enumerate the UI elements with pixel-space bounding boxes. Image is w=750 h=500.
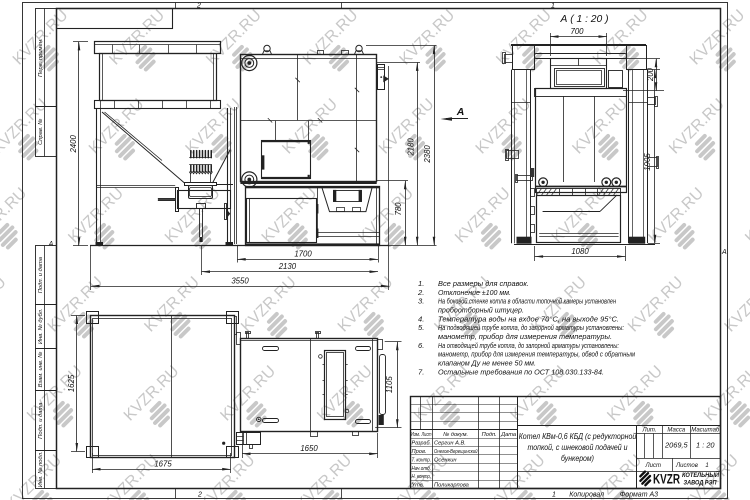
svg-text:2180: 2180 — [406, 138, 415, 157]
svg-text:Дата: Дата — [500, 432, 516, 438]
svg-text:Разраб.: Разраб. — [412, 441, 432, 447]
svg-text:1650: 1650 — [300, 444, 318, 453]
svg-text:5.: 5. — [418, 323, 424, 332]
svg-text:Лист: Лист — [421, 432, 432, 438]
svg-text:бункером): бункером) — [561, 454, 594, 463]
svg-text:2380: 2380 — [423, 145, 432, 164]
svg-text:7.: 7. — [418, 367, 424, 376]
svg-text:На отводящей трубе котла, до з: На отводящей трубе котла, до запорной ар… — [438, 341, 619, 350]
svg-text:Перв. примен.: Перв. примен. — [38, 38, 44, 77]
svg-text:2069,5: 2069,5 — [664, 441, 688, 450]
svg-text:Онегов-Верещинский: Онегов-Верещинский — [434, 448, 478, 455]
svg-text:Т. контр.: Т. контр. — [412, 457, 432, 463]
svg-text:Пров.: Пров. — [412, 449, 427, 455]
svg-text:1625: 1625 — [67, 374, 76, 392]
svg-text:3.: 3. — [418, 297, 424, 306]
svg-text:2: 2 — [197, 491, 202, 498]
svg-text:манометр, прибор для измерения: манометр, прибор для измерения температу… — [438, 350, 636, 359]
svg-text:А: А — [456, 106, 465, 118]
svg-text:Масса: Масса — [667, 427, 685, 433]
svg-text:На подводящей трубе котла, до: На подводящей трубе котла, до запорной а… — [438, 323, 624, 332]
svg-text:1.: 1. — [418, 279, 424, 288]
svg-text:пробоотборный штуцер.: пробоотборный штуцер. — [438, 305, 524, 314]
svg-text:1: 1 — [705, 463, 708, 469]
svg-text:Инв. № подл.: Инв. № подл. — [38, 451, 44, 487]
svg-text:780: 780 — [394, 202, 403, 216]
svg-text:Поликарпова: Поликарпова — [434, 483, 469, 489]
svg-text:А ( 1 : 20 ): А ( 1 : 20 ) — [560, 14, 609, 25]
svg-text:Утв.: Утв. — [411, 483, 425, 489]
svg-text:Н. контр.: Н. контр. — [412, 474, 432, 480]
svg-text:Изм.: Изм. — [411, 432, 421, 438]
svg-text:2.: 2. — [417, 288, 424, 297]
svg-text:700: 700 — [570, 27, 584, 36]
svg-text:2400: 2400 — [69, 135, 78, 154]
svg-text:Лит.: Лит. — [641, 427, 656, 433]
svg-text:1 : 20: 1 : 20 — [696, 441, 715, 450]
svg-text:Сергин А.В.: Сергин А.В. — [434, 441, 466, 447]
svg-text:1700: 1700 — [294, 250, 312, 259]
svg-text:4.: 4. — [418, 314, 424, 323]
svg-text:КОТЕЛЬНЫЙ: КОТЕЛЬНЫЙ — [682, 470, 719, 479]
svg-text:№ докум.: № докум. — [443, 432, 468, 438]
svg-text:Листов: Листов — [675, 463, 698, 469]
svg-text:Формат А3: Формат А3 — [620, 491, 658, 498]
svg-text:Остальные требования по ОСТ 10: Остальные требования по ОСТ 108.030.133-… — [438, 367, 604, 376]
svg-text:Лист: Лист — [645, 463, 661, 469]
svg-text:3550: 3550 — [231, 276, 249, 285]
svg-text:KVZR: KVZR — [653, 472, 680, 487]
svg-text:1080: 1080 — [571, 247, 589, 256]
svg-text:Все размеры для справок.: Все размеры для справок. — [438, 279, 529, 288]
svg-text:А: А — [721, 249, 727, 256]
svg-text:Копировал: Копировал — [569, 491, 604, 498]
svg-text:Отклонение ±100 мм.: Отклонение ±100 мм. — [438, 288, 511, 297]
svg-text:Инв. № дубл.: Инв. № дубл. — [38, 308, 44, 344]
svg-text:клапаном Ду не менее 50 мм.: клапаном Ду не менее 50 мм. — [438, 359, 536, 368]
svg-text:Подп.: Подп. — [482, 432, 497, 438]
svg-text:1675: 1675 — [154, 460, 172, 469]
svg-text:1105: 1105 — [385, 376, 394, 393]
svg-text:2: 2 — [196, 3, 201, 10]
svg-text:6.: 6. — [418, 341, 424, 350]
svg-text:Нач.отд.: Нач.отд. — [412, 466, 432, 472]
svg-text:А: А — [48, 241, 54, 248]
svg-text:ЗАВОД РЭП: ЗАВОД РЭП — [684, 480, 717, 487]
svg-text:Температура воды на вхдое 70°С: Температура воды на вхдое 70°С, на выход… — [438, 314, 619, 323]
svg-text:манометр, прибор для измерения: манометр, прибор для измерения температу… — [438, 332, 612, 341]
svg-text:Масштаб: Масштаб — [691, 427, 720, 433]
svg-text:Подп. и дата: Подп. и дата — [38, 256, 44, 293]
svg-text:1: 1 — [551, 3, 555, 10]
svg-text:Осенкин: Осенкин — [434, 457, 457, 463]
svg-text:1: 1 — [552, 491, 556, 498]
svg-text:Подп. и дата: Подп. и дата — [38, 402, 44, 439]
svg-text:2130: 2130 — [278, 262, 297, 271]
svg-text:Взам. инв. №: Взам. инв. № — [38, 352, 44, 388]
svg-text:Справ. №: Справ. № — [38, 119, 44, 145]
svg-text:1905: 1905 — [643, 153, 652, 171]
svg-text:топкой, с шнековой подачей и: топкой, с шнековой подачей и — [528, 443, 628, 452]
svg-text:Котел КВм-0,6 КБД (с редукторн: Котел КВм-0,6 КБД (с редукторной — [519, 432, 637, 441]
svg-text:На боковой стенке котла в обла: На боковой стенке котла в области топочн… — [438, 297, 617, 306]
